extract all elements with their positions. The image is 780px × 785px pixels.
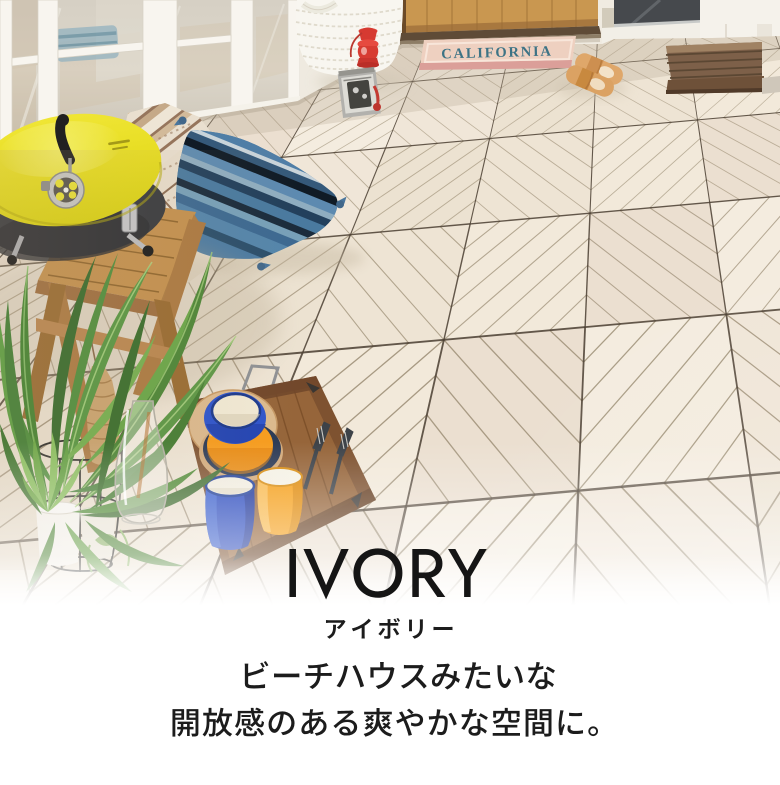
svg-text:CALIFORNIA: CALIFORNIA [441, 44, 553, 63]
